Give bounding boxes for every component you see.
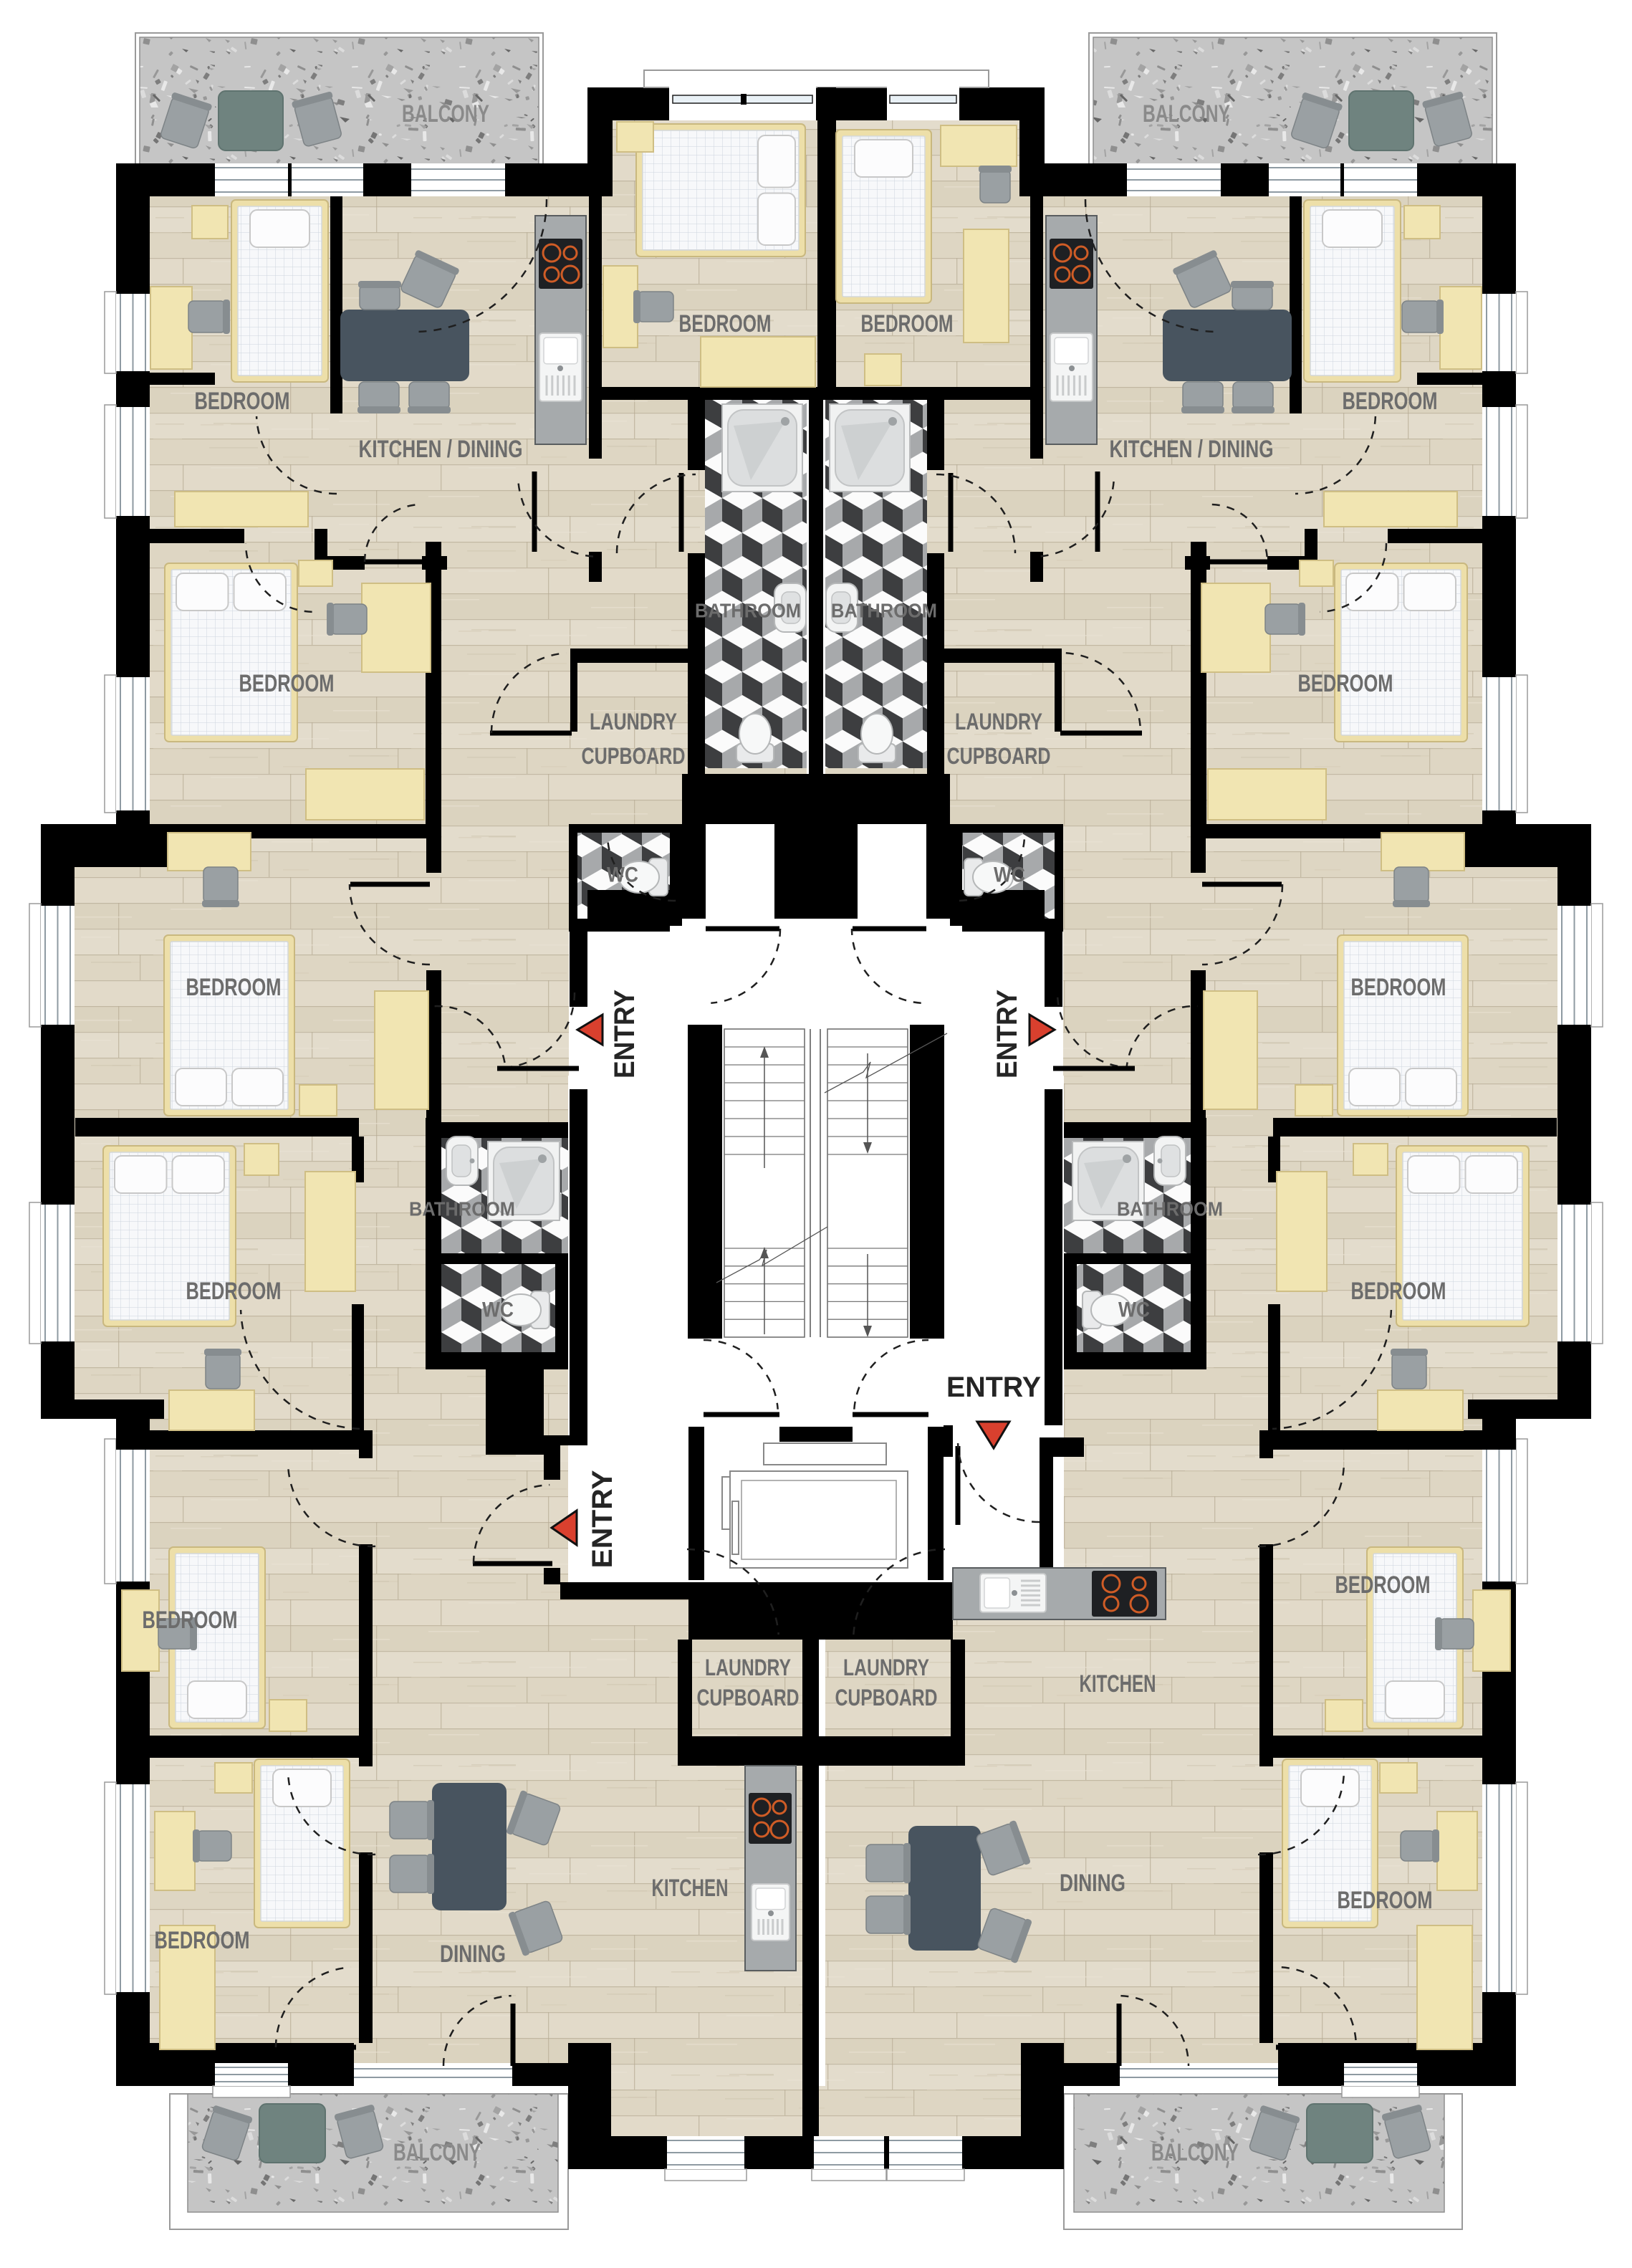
svg-text:BATHROOM: BATHROOM	[409, 1198, 515, 1220]
svg-text:KITCHEN: KITCHEN	[652, 1875, 729, 1902]
svg-text:BEDROOM: BEDROOM	[1338, 1887, 1433, 1914]
svg-text:BEDROOM: BEDROOM	[861, 310, 954, 338]
svg-text:ENTRY: ENTRY	[587, 1470, 618, 1568]
svg-text:CUPBOARD: CUPBOARD	[835, 1685, 938, 1710]
svg-text:KITCHEN / DINING: KITCHEN / DINING	[359, 436, 523, 463]
svg-text:BATHROOM: BATHROOM	[1117, 1198, 1223, 1220]
svg-text:CUPBOARD: CUPBOARD	[697, 1685, 800, 1710]
svg-text:BALCONY: BALCONY	[1151, 2139, 1239, 2166]
svg-text:BALCONY: BALCONY	[1143, 100, 1230, 128]
svg-text:BEDROOM: BEDROOM	[195, 388, 290, 415]
svg-text:CUPBOARD: CUPBOARD	[582, 743, 686, 769]
svg-text:ENTRY: ENTRY	[946, 1372, 1041, 1403]
svg-text:WC: WC	[1118, 1298, 1150, 1322]
svg-text:BEDROOM: BEDROOM	[1298, 670, 1393, 697]
svg-text:BEDROOM: BEDROOM	[143, 1607, 238, 1634]
svg-text:WC: WC	[994, 863, 1025, 887]
svg-text:LAUNDRY: LAUNDRY	[955, 709, 1042, 735]
svg-text:BALCONY: BALCONY	[393, 2139, 481, 2166]
svg-text:LAUNDRY: LAUNDRY	[843, 1655, 929, 1680]
svg-text:BEDROOM: BEDROOM	[679, 310, 772, 338]
svg-text:BEDROOM: BEDROOM	[1335, 1571, 1431, 1599]
svg-text:LAUNDRY: LAUNDRY	[705, 1655, 791, 1680]
svg-text:KITCHEN / DINING: KITCHEN / DINING	[1110, 436, 1274, 463]
svg-text:BEDROOM: BEDROOM	[186, 974, 282, 1001]
svg-text:ENTRY: ENTRY	[992, 990, 1023, 1078]
svg-text:BATHROOM: BATHROOM	[695, 600, 801, 622]
svg-text:BEDROOM: BEDROOM	[1351, 974, 1446, 1001]
svg-text:ENTRY: ENTRY	[609, 990, 640, 1078]
svg-text:WC: WC	[482, 1298, 514, 1322]
svg-text:BEDROOM: BEDROOM	[1351, 1278, 1446, 1305]
svg-text:DINING: DINING	[1060, 1870, 1125, 1897]
svg-text:BEDROOM: BEDROOM	[186, 1278, 282, 1305]
svg-text:DINING: DINING	[440, 1941, 506, 1968]
svg-text:LAUNDRY: LAUNDRY	[590, 709, 677, 735]
svg-text:BEDROOM: BEDROOM	[239, 670, 335, 697]
svg-text:KITCHEN: KITCHEN	[1080, 1670, 1156, 1698]
svg-text:BALCONY: BALCONY	[402, 100, 489, 128]
svg-text:WC: WC	[607, 863, 638, 887]
svg-text:BEDROOM: BEDROOM	[1343, 388, 1438, 415]
svg-text:CUPBOARD: CUPBOARD	[947, 743, 1051, 769]
svg-text:BEDROOM: BEDROOM	[155, 1927, 250, 1954]
svg-text:BATHROOM: BATHROOM	[831, 600, 937, 622]
